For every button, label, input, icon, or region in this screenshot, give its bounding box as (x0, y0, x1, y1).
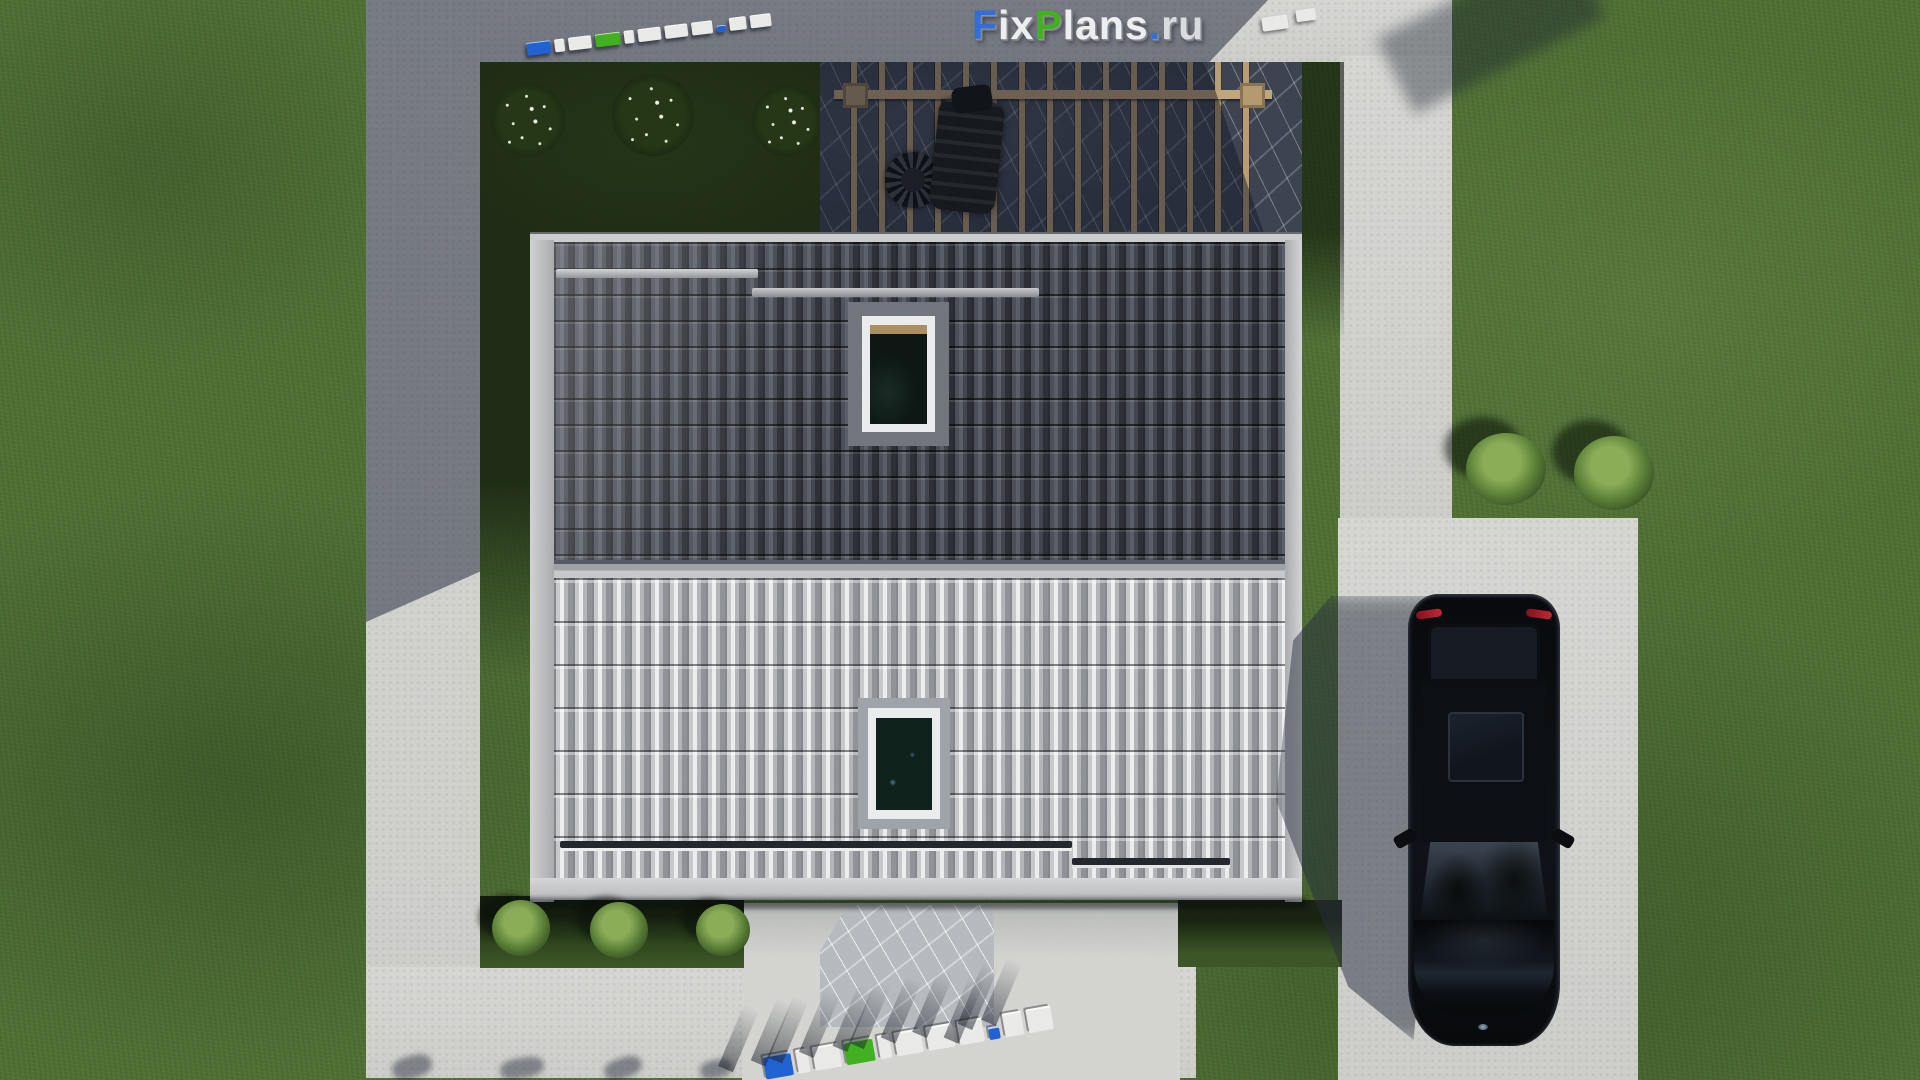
flowering-shrub (752, 86, 822, 156)
snow-guard-bar-highlight (1072, 865, 1230, 868)
logo-letter: P (1034, 2, 1062, 48)
snow-guard-bar (752, 288, 1039, 297)
foundation-bush (590, 902, 648, 958)
snow-guard-bar (560, 841, 1072, 848)
logo-letter: F (972, 2, 998, 48)
logo-letter: u (1178, 2, 1204, 48)
logo-letter: s (1125, 2, 1149, 48)
flowering-shrub (491, 83, 565, 157)
logo-letter: x (1010, 2, 1034, 48)
lounge-chair (928, 97, 1005, 215)
logo-letter: i (998, 2, 1010, 48)
shaded-lawn-strip-left (480, 238, 536, 678)
house-shadow-grass-right (1302, 62, 1344, 342)
car-windshield (1420, 842, 1548, 920)
watermark-letter-block-u (1025, 1005, 1054, 1033)
logo-letter: a (1075, 2, 1099, 48)
snow-guard-bar (1072, 858, 1230, 865)
house-shadow-left-path (366, 62, 480, 622)
walkway-to-driveway (1340, 56, 1452, 522)
watermark-letter-block-r (729, 16, 747, 31)
foundation-bush (696, 904, 750, 956)
logo-letter: l (1063, 2, 1075, 48)
watermark-letter-block-r (1001, 1010, 1024, 1037)
car-badge (1478, 1024, 1488, 1030)
car-sunroof (1448, 712, 1524, 782)
pergola-post (1240, 83, 1265, 108)
watermark-letter-block-dot (988, 1025, 1001, 1040)
watermark-letter-block-x (568, 35, 592, 51)
foundation-bush (492, 900, 550, 956)
watermark-letter-block-l (623, 30, 635, 44)
flowering-shrub (612, 74, 694, 156)
watermark-letter-block-a (637, 27, 661, 43)
logo-letter: r (1161, 2, 1178, 48)
foundation-bed-right (1178, 900, 1342, 967)
skylight-glass (870, 334, 927, 424)
snow-guard-bar-highlight (560, 848, 1072, 851)
logo-letter: n (1099, 2, 1125, 48)
black-car (1408, 594, 1560, 1046)
skylight-frame (862, 316, 935, 432)
roof-fascia-bottom (530, 878, 1302, 900)
roof-fascia-left (530, 240, 554, 902)
pergola-patio (820, 62, 1302, 232)
skylight-frame (868, 708, 940, 819)
snow-guard-bar (556, 269, 758, 278)
eave-shadow (526, 898, 1306, 909)
watermark-letter-block-i (554, 38, 566, 52)
skylight-head-trim (870, 325, 927, 334)
roof-ridge (554, 560, 1285, 578)
lawn-bush (1574, 436, 1654, 510)
skylight-north (848, 302, 949, 446)
lawn-bush (1466, 433, 1546, 505)
skylight-south (858, 698, 950, 829)
watermark-letter-block-dot (717, 24, 727, 32)
site-plan-render: FixPlans.ru (0, 0, 1920, 1080)
fixplans-logo: FixPlans.ru (972, 2, 1204, 50)
logo-letter: . (1149, 2, 1161, 48)
skylight-glass (876, 718, 932, 810)
watermark-letter-block-u (749, 13, 772, 28)
watermark-letter-block-s (691, 20, 714, 35)
watermark-letter-block-n (664, 23, 688, 39)
house-roof (530, 232, 1302, 905)
car-rear-window (1428, 624, 1540, 682)
car-hood (1414, 920, 1554, 1016)
